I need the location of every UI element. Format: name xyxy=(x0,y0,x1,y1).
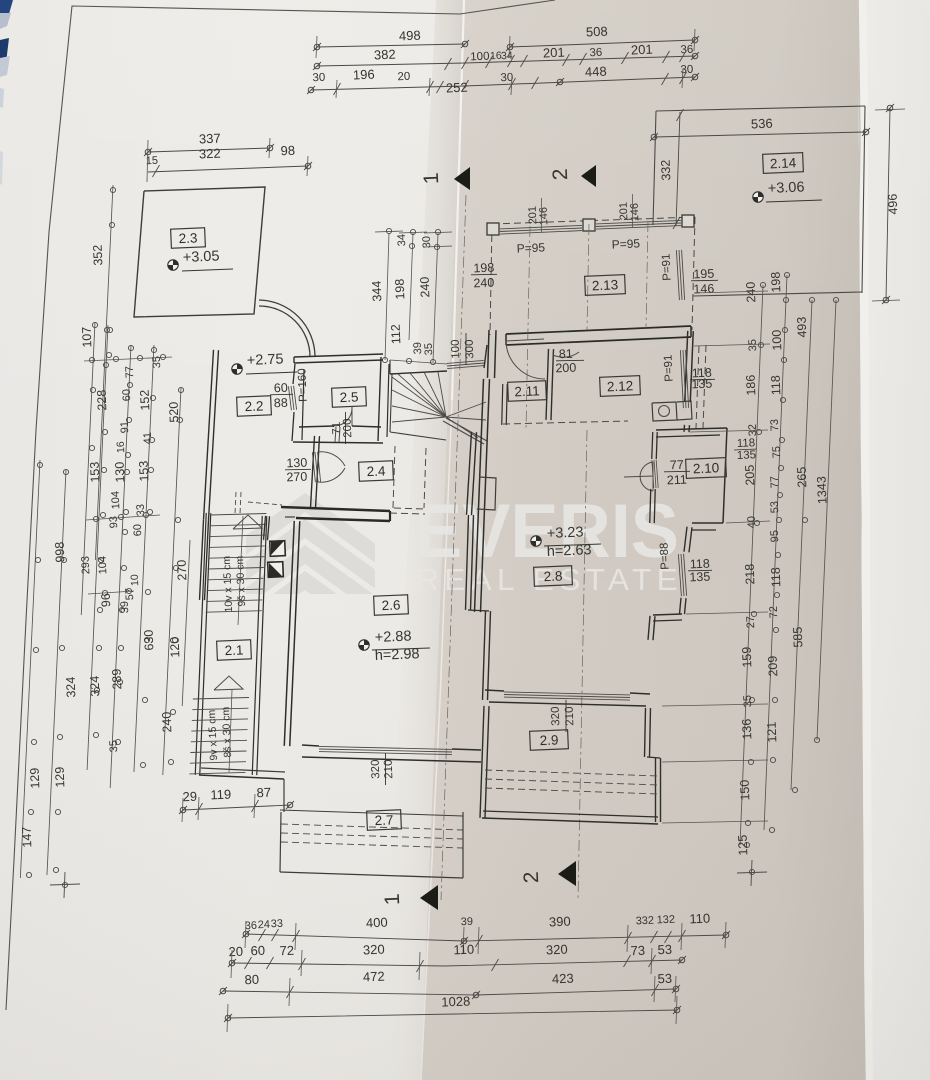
svg-text:9v x 15 cm: 9v x 15 cm xyxy=(206,709,220,760)
svg-text:112: 112 xyxy=(389,324,404,345)
svg-text:198: 198 xyxy=(393,278,408,299)
svg-text:107: 107 xyxy=(80,326,95,347)
svg-text:293: 293 xyxy=(80,556,93,575)
svg-text:118: 118 xyxy=(769,375,784,396)
svg-text:+3.23: +3.23 xyxy=(546,524,583,542)
svg-text:400: 400 xyxy=(366,915,388,931)
svg-text:320: 320 xyxy=(546,942,568,958)
svg-text:36: 36 xyxy=(680,44,693,57)
svg-text:132: 132 xyxy=(656,914,675,927)
svg-text:88: 88 xyxy=(274,396,289,411)
svg-text:P=91: P=91 xyxy=(660,253,673,281)
svg-text:2.11: 2.11 xyxy=(514,383,540,399)
svg-text:195: 195 xyxy=(693,267,714,282)
svg-text:2.2: 2.2 xyxy=(244,398,263,414)
svg-text:75: 75 xyxy=(771,446,784,459)
svg-text:136: 136 xyxy=(740,718,755,739)
svg-text:423: 423 xyxy=(552,971,574,987)
svg-text:60: 60 xyxy=(250,943,265,959)
svg-text:36: 36 xyxy=(245,920,258,933)
svg-text:240: 240 xyxy=(160,711,175,732)
svg-text:10v x 15 cm: 10v x 15 cm xyxy=(221,555,235,612)
svg-text:496: 496 xyxy=(886,193,901,214)
svg-text:998: 998 xyxy=(53,541,68,562)
svg-text:118: 118 xyxy=(737,437,756,450)
svg-text:146: 146 xyxy=(629,203,642,222)
svg-text:+2.75: +2.75 xyxy=(246,351,283,369)
svg-text:2: 2 xyxy=(520,871,543,884)
svg-text:29: 29 xyxy=(182,789,197,805)
svg-text:2.10: 2.10 xyxy=(693,460,720,476)
svg-text:265: 265 xyxy=(795,466,810,487)
svg-text:493: 493 xyxy=(795,316,810,337)
svg-text:2.5: 2.5 xyxy=(339,389,358,405)
svg-text:41: 41 xyxy=(142,432,155,445)
svg-text:159: 159 xyxy=(740,646,755,667)
svg-text:P=95: P=95 xyxy=(516,240,545,255)
svg-text:337: 337 xyxy=(199,131,221,147)
svg-text:57: 57 xyxy=(124,588,137,601)
svg-text:110: 110 xyxy=(689,911,710,927)
svg-text:344: 344 xyxy=(370,280,385,301)
svg-text:130: 130 xyxy=(286,456,307,471)
svg-text:36: 36 xyxy=(589,47,602,60)
svg-text:P=95: P=95 xyxy=(611,236,640,251)
svg-text:146: 146 xyxy=(538,207,551,226)
svg-text:205: 205 xyxy=(743,464,758,485)
svg-text:472: 472 xyxy=(363,969,385,985)
svg-text:508: 508 xyxy=(586,24,608,40)
svg-text:73: 73 xyxy=(769,419,782,432)
svg-text:228: 228 xyxy=(95,389,110,410)
svg-text:35: 35 xyxy=(747,339,760,352)
svg-text:153: 153 xyxy=(137,460,152,481)
svg-text:390: 390 xyxy=(549,914,571,930)
svg-text:352: 352 xyxy=(91,244,106,265)
svg-text:72: 72 xyxy=(768,606,781,619)
svg-text:198: 198 xyxy=(473,261,494,276)
svg-text:200: 200 xyxy=(555,361,576,376)
svg-text:2.12: 2.12 xyxy=(607,378,634,394)
svg-text:33: 33 xyxy=(135,504,148,517)
svg-text:77: 77 xyxy=(124,366,137,379)
svg-text:125: 125 xyxy=(736,834,751,855)
svg-text:16: 16 xyxy=(115,441,127,453)
svg-text:2.9: 2.9 xyxy=(539,732,558,748)
svg-text:150: 150 xyxy=(738,779,753,800)
svg-text:536: 536 xyxy=(751,116,773,132)
svg-text:332: 332 xyxy=(659,159,674,180)
svg-text:322: 322 xyxy=(199,146,221,162)
svg-text:2.6: 2.6 xyxy=(381,597,400,613)
svg-text:382: 382 xyxy=(374,47,396,63)
svg-text:10: 10 xyxy=(129,574,141,586)
svg-text:h=2.63: h=2.63 xyxy=(546,542,591,560)
svg-text:24: 24 xyxy=(258,919,271,932)
svg-text:196: 196 xyxy=(353,67,375,83)
svg-text:2.1: 2.1 xyxy=(224,642,243,658)
svg-text:+3.05: +3.05 xyxy=(182,248,219,266)
svg-text:53: 53 xyxy=(657,942,672,958)
svg-text:147: 147 xyxy=(20,826,35,847)
svg-text:1: 1 xyxy=(420,172,443,185)
svg-text:146: 146 xyxy=(693,282,714,297)
svg-text:100: 100 xyxy=(770,329,785,350)
svg-text:60: 60 xyxy=(132,524,145,537)
svg-text:2.4: 2.4 xyxy=(366,463,386,479)
svg-text:8š x 30 cm: 8š x 30 cm xyxy=(220,706,234,757)
svg-text:630: 630 xyxy=(142,629,157,650)
svg-text:73: 73 xyxy=(630,943,645,959)
svg-text:210: 210 xyxy=(383,759,396,779)
svg-text:120: 120 xyxy=(168,636,183,657)
svg-text:87: 87 xyxy=(256,785,271,801)
svg-text:270: 270 xyxy=(286,470,307,485)
svg-text:1: 1 xyxy=(381,893,404,906)
svg-text:118: 118 xyxy=(769,567,784,588)
svg-text:289: 289 xyxy=(110,668,125,689)
svg-text:121: 121 xyxy=(765,721,780,742)
svg-text:60: 60 xyxy=(274,381,289,396)
svg-text:2.3: 2.3 xyxy=(178,230,197,246)
svg-text:72: 72 xyxy=(279,943,294,959)
svg-text:100: 100 xyxy=(470,51,490,64)
svg-text:91: 91 xyxy=(119,421,132,434)
svg-text:200: 200 xyxy=(342,418,355,438)
svg-text:135: 135 xyxy=(737,449,757,462)
svg-text:135: 135 xyxy=(689,570,710,585)
svg-text:20: 20 xyxy=(397,71,410,84)
svg-text:P=88: P=88 xyxy=(658,542,671,570)
svg-text:35: 35 xyxy=(423,343,436,356)
svg-text:2.7: 2.7 xyxy=(374,812,393,828)
svg-text:300: 300 xyxy=(464,339,477,359)
svg-text:135: 135 xyxy=(691,377,712,392)
svg-text:520: 520 xyxy=(167,401,182,422)
svg-text:240: 240 xyxy=(418,276,433,297)
svg-text:34: 34 xyxy=(396,234,409,247)
svg-text:30: 30 xyxy=(312,72,325,85)
svg-text:80: 80 xyxy=(244,972,259,988)
svg-text:95: 95 xyxy=(769,530,782,543)
svg-text:104: 104 xyxy=(110,491,123,510)
svg-text:153: 153 xyxy=(88,461,103,482)
svg-text:320: 320 xyxy=(550,706,563,726)
svg-text:77: 77 xyxy=(769,476,782,489)
svg-text:+3.06: +3.06 xyxy=(767,179,804,197)
svg-text:201: 201 xyxy=(543,45,565,61)
svg-text:20: 20 xyxy=(228,944,243,960)
svg-text:198: 198 xyxy=(769,271,784,292)
svg-text:1028: 1028 xyxy=(441,993,471,1009)
svg-text:209: 209 xyxy=(766,655,781,676)
svg-text:33: 33 xyxy=(271,918,284,931)
svg-text:53: 53 xyxy=(769,501,782,514)
svg-text:P=91: P=91 xyxy=(662,354,675,382)
svg-text:77: 77 xyxy=(670,458,685,473)
svg-text:498: 498 xyxy=(399,28,421,44)
svg-text:39: 39 xyxy=(119,601,132,614)
svg-text:201: 201 xyxy=(631,42,653,58)
svg-text:130: 130 xyxy=(113,461,128,482)
svg-text:1343: 1343 xyxy=(814,476,829,504)
svg-text:324: 324 xyxy=(64,676,79,697)
svg-text:210: 210 xyxy=(564,706,577,726)
svg-text:448: 448 xyxy=(585,64,607,80)
svg-text:27: 27 xyxy=(745,616,758,629)
svg-text:P=160: P=160 xyxy=(296,368,309,402)
svg-text:39: 39 xyxy=(461,916,474,929)
svg-text:186: 186 xyxy=(744,374,759,395)
svg-text:270: 270 xyxy=(175,559,190,580)
svg-text:211: 211 xyxy=(667,473,688,488)
svg-text:129: 129 xyxy=(28,767,43,788)
svg-text:35: 35 xyxy=(108,740,121,753)
svg-text:60: 60 xyxy=(121,389,134,402)
svg-text:+2.88: +2.88 xyxy=(374,628,411,646)
svg-text:240: 240 xyxy=(744,281,759,302)
svg-text:30: 30 xyxy=(680,64,693,77)
svg-text:240: 240 xyxy=(473,276,494,291)
svg-text:332: 332 xyxy=(635,915,654,928)
svg-text:129: 129 xyxy=(53,766,68,787)
svg-text:81: 81 xyxy=(559,347,574,362)
svg-text:53: 53 xyxy=(657,971,672,987)
svg-text:35: 35 xyxy=(742,695,755,708)
svg-text:2: 2 xyxy=(549,168,572,181)
svg-text:2.8: 2.8 xyxy=(543,568,562,584)
svg-text:h=2.98: h=2.98 xyxy=(374,646,419,664)
svg-text:104: 104 xyxy=(97,556,110,575)
svg-text:110: 110 xyxy=(453,942,474,958)
svg-text:320: 320 xyxy=(363,942,385,958)
svg-text:324: 324 xyxy=(88,675,103,696)
svg-text:218: 218 xyxy=(743,563,758,584)
svg-text:585: 585 xyxy=(791,626,806,647)
svg-text:152: 152 xyxy=(138,389,153,410)
svg-text:2.13: 2.13 xyxy=(592,277,619,293)
svg-text:320: 320 xyxy=(370,759,383,779)
svg-text:2.14: 2.14 xyxy=(770,155,797,171)
svg-text:98: 98 xyxy=(280,143,295,159)
svg-text:119: 119 xyxy=(210,787,231,803)
